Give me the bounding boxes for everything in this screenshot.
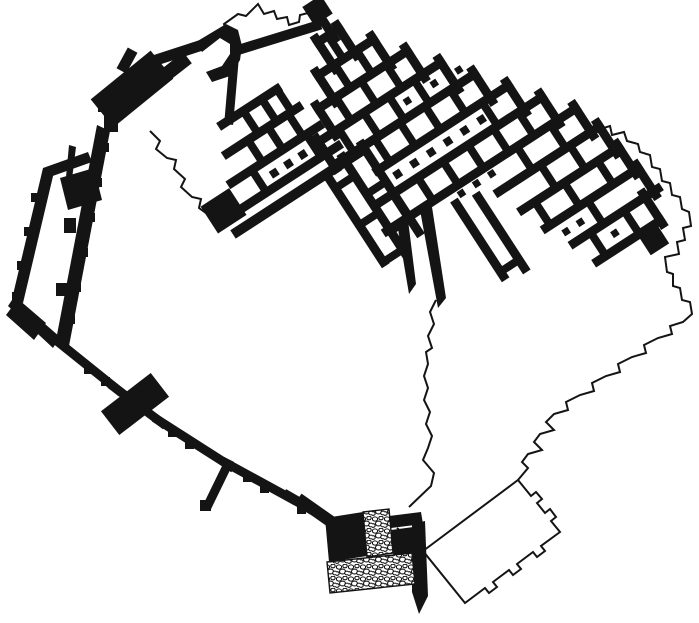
finger-wall-b	[420, 207, 446, 308]
site-plan-figure	[0, 0, 699, 623]
page	[0, 0, 699, 623]
site-plan-svg	[0, 0, 699, 623]
gate-passage-cobbles	[363, 509, 393, 557]
annex-building-outline	[423, 480, 560, 603]
gate-right-band	[412, 521, 428, 614]
casemate-west-wall	[12, 168, 54, 303]
west-rampart	[12, 20, 338, 530]
excavation-boundary-southeast	[409, 300, 436, 507]
gate-left-tower	[325, 512, 367, 562]
